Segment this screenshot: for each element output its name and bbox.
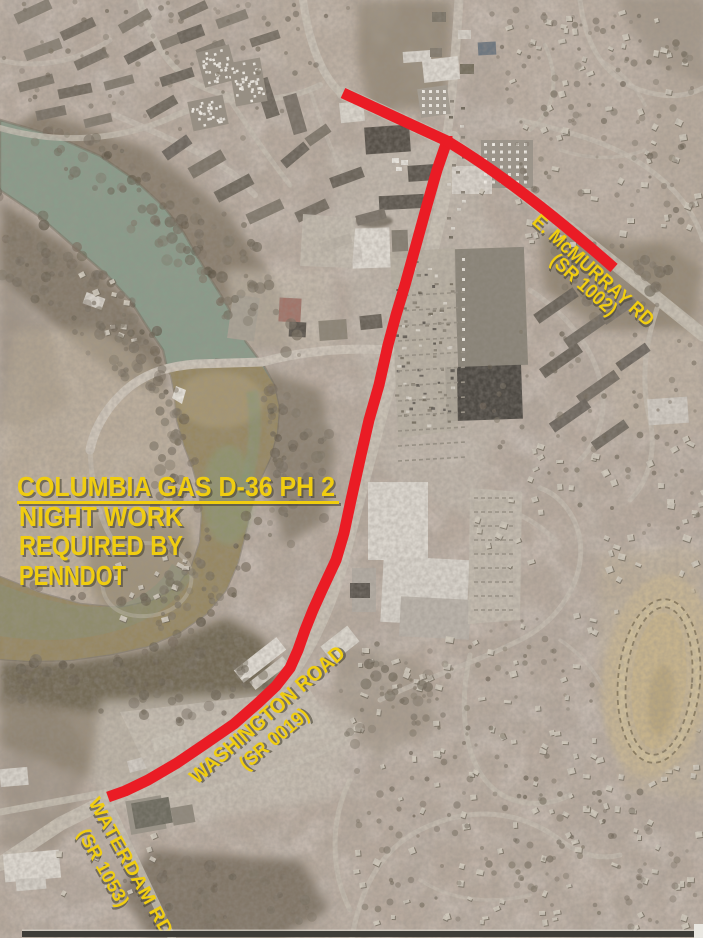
svg-text:PENNDOT: PENNDOT [19,560,126,591]
svg-text:NIGHT WORK: NIGHT WORK [19,501,183,532]
svg-text:REQUIRED BY: REQUIRED BY [19,530,183,561]
svg-text:COLUMBIA GAS D-36 PH 2: COLUMBIA GAS D-36 PH 2 [17,471,335,502]
